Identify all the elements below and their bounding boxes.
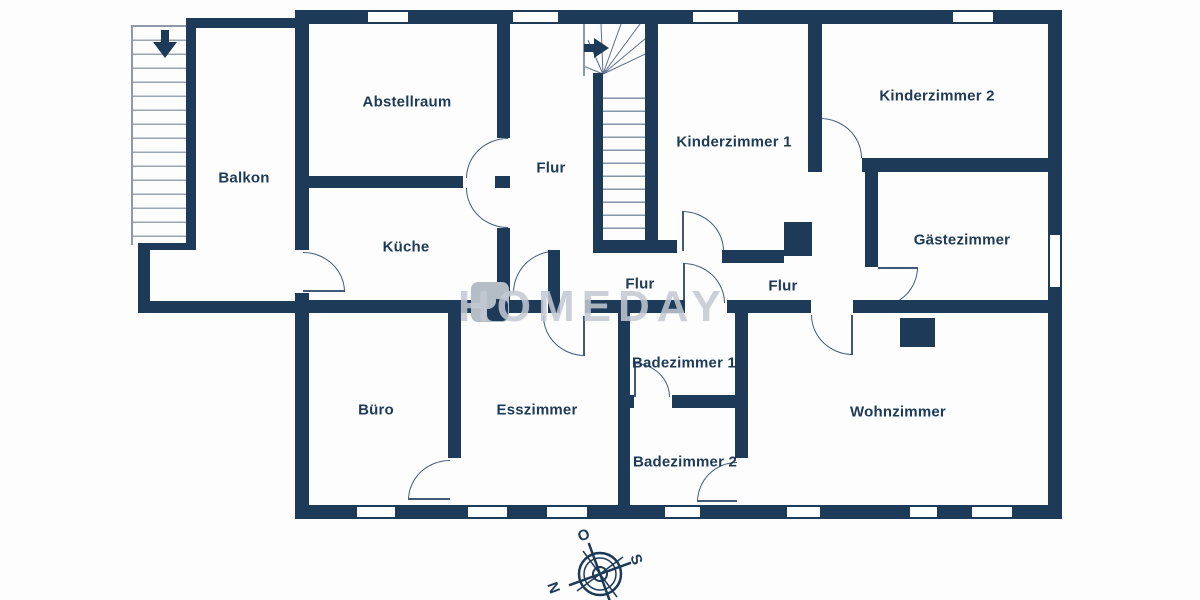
wall-segment (618, 395, 634, 408)
window (972, 505, 1012, 519)
door-leaf (408, 498, 450, 500)
wall-segment (645, 240, 677, 253)
room-label-gaestezimmer: Gästezimmer (914, 232, 1010, 249)
wall-segment (735, 313, 748, 458)
wall-segment (853, 300, 1062, 313)
window (468, 505, 507, 519)
room-label-esszimmer: Esszimmer (496, 402, 577, 419)
interior-staircase-steps (603, 86, 645, 240)
door-leaf (851, 315, 853, 355)
door-leaf (682, 211, 684, 251)
door-leaf (697, 500, 737, 502)
window (513, 10, 558, 24)
balcony-wall (186, 18, 196, 248)
room-label-abstellraum: Abstellraum (363, 94, 452, 111)
window (910, 505, 937, 519)
window (953, 10, 993, 24)
door-arc (466, 138, 508, 178)
door-arc (811, 315, 853, 355)
window (1048, 235, 1062, 287)
stairs-up-arrow-icon (594, 38, 609, 58)
stair-rail (131, 25, 186, 27)
door-arc (408, 460, 450, 500)
wall-segment (408, 10, 513, 24)
stairwell-wall (645, 24, 658, 253)
wall-segment (448, 313, 461, 458)
wall-segment (862, 158, 1062, 172)
door-leaf (303, 290, 345, 292)
room-label-buero: Büro (358, 402, 394, 419)
window (357, 505, 395, 519)
wall-segment (1048, 10, 1062, 235)
door-arc (820, 118, 862, 158)
window (368, 10, 408, 24)
stairwell-wall (593, 73, 603, 250)
terrace-wall (138, 250, 150, 308)
masonry-block (784, 222, 812, 256)
balcony-wall (138, 243, 196, 250)
window (693, 10, 738, 24)
room-label-kueche: Küche (383, 239, 430, 256)
wall-segment (700, 505, 787, 519)
wall-segment (295, 10, 309, 250)
room-label-kinderzimmer-2: Kinderzimmer 2 (879, 88, 994, 105)
wall-segment (497, 24, 510, 138)
room-label-badezimmer-2: Badezimmer 2 (633, 454, 737, 471)
wall-segment (937, 505, 972, 519)
wall-segment (395, 505, 468, 519)
door-arc (303, 252, 345, 292)
wall-segment (820, 505, 910, 519)
room-label-flur-ost: Flur (768, 278, 797, 295)
wall-segment (722, 250, 784, 263)
window (665, 505, 700, 519)
wall-segment (495, 176, 510, 188)
wall-segment (295, 293, 309, 519)
wall-segment (738, 10, 953, 24)
masonry-block (900, 318, 935, 347)
wall-segment (618, 313, 630, 505)
door-arc (682, 211, 724, 251)
room-label-kinderzimmer-1: Kinderzimmer 1 (676, 134, 791, 151)
wall-segment (558, 10, 693, 24)
wall-segment (1012, 505, 1062, 519)
wall-segment (865, 172, 878, 267)
wall-segment (1048, 287, 1062, 519)
room-label-wohnzimmer: Wohnzimmer (850, 404, 946, 421)
wall-segment (672, 395, 735, 408)
door-arc (466, 188, 508, 228)
floor-plan: HOMEDAY (0, 0, 1200, 600)
room-label-balkon: Balkon (218, 170, 269, 187)
room-label-badezimmer-1: Badezimmer 1 (632, 355, 736, 372)
room-label-flur-west: Flur (536, 160, 565, 177)
terrace-wall (138, 301, 295, 313)
wall-segment (308, 176, 463, 188)
stairs-down-arrow-icon (153, 42, 177, 58)
wall-segment (808, 24, 822, 172)
door-leaf (878, 267, 918, 269)
stair-rail (131, 25, 133, 245)
exterior-staircase-steps (133, 27, 186, 245)
watermark: HOMEDAY (458, 282, 748, 332)
window (787, 505, 820, 519)
balcony-wall (186, 18, 296, 28)
